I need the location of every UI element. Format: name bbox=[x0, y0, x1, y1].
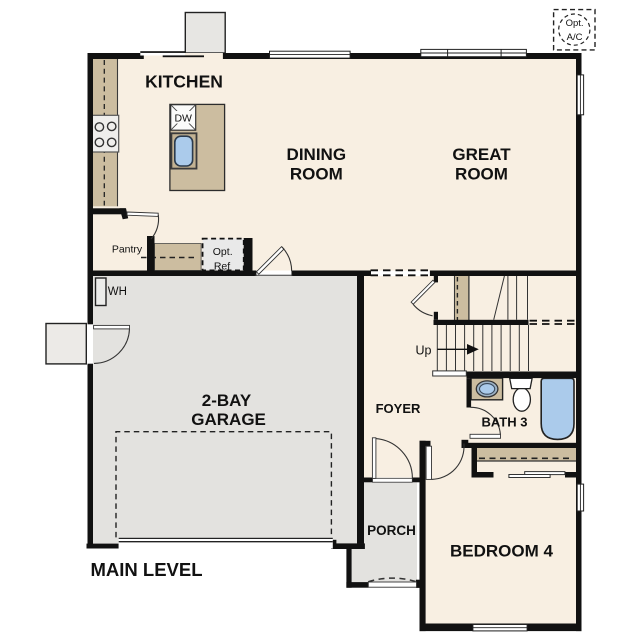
svg-text:A/C: A/C bbox=[567, 32, 583, 43]
svg-text:BEDROOM 4: BEDROOM 4 bbox=[450, 541, 554, 560]
svg-text:BATH 3: BATH 3 bbox=[482, 415, 528, 430]
svg-text:DW: DW bbox=[174, 112, 192, 124]
svg-text:ROOM: ROOM bbox=[455, 164, 508, 183]
svg-text:WH: WH bbox=[108, 286, 127, 298]
svg-text:2-BAY: 2-BAY bbox=[202, 391, 252, 410]
svg-text:GREAT: GREAT bbox=[452, 145, 511, 164]
svg-text:PORCH: PORCH bbox=[367, 523, 416, 538]
svg-text:ROOM: ROOM bbox=[290, 164, 343, 183]
svg-text:Pantry: Pantry bbox=[112, 244, 143, 256]
svg-text:Opt.: Opt. bbox=[213, 246, 233, 258]
svg-text:FOYER: FOYER bbox=[376, 401, 421, 416]
svg-text:Up: Up bbox=[416, 344, 432, 358]
svg-text:KITCHEN: KITCHEN bbox=[145, 71, 223, 91]
svg-text:MAIN LEVEL: MAIN LEVEL bbox=[91, 559, 203, 580]
svg-text:DINING: DINING bbox=[287, 145, 347, 164]
svg-text:GARAGE: GARAGE bbox=[191, 410, 266, 429]
svg-text:Opt.: Opt. bbox=[566, 18, 584, 29]
